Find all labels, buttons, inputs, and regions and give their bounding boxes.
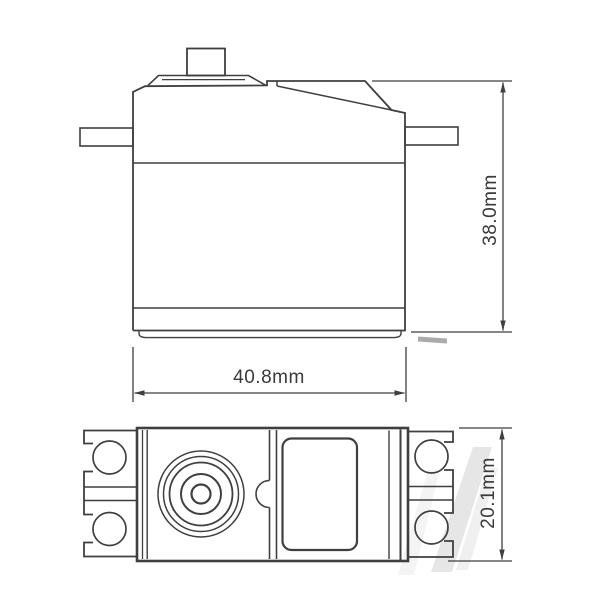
gear-circle-4 <box>181 474 221 514</box>
servo-bottom-view <box>84 428 453 561</box>
body-outline <box>133 81 405 331</box>
output-shaft-hole <box>192 485 211 504</box>
bottom-feet <box>139 331 401 338</box>
gear-circle-outer <box>158 451 244 537</box>
screw-hole-left-top <box>93 441 126 474</box>
arrowhead-up <box>499 429 504 440</box>
dimension-width: 40.8mm <box>133 347 406 402</box>
flange-left-rib <box>84 487 137 501</box>
screw-hole-right-top <box>415 440 448 473</box>
height-dimension-label: 38.0mm <box>480 174 501 246</box>
output-shaft <box>187 49 225 76</box>
servo-dimension-drawing: 38.0mm 40.8mm <box>0 0 600 600</box>
arrowhead-down <box>499 550 504 561</box>
flange-left-outline <box>84 431 137 557</box>
motor-compartment <box>283 439 358 551</box>
case-outline <box>137 428 408 561</box>
depth-dimension-label: 20.1mm <box>478 457 499 529</box>
gear-circle-3 <box>170 463 233 526</box>
dimension-height: 38.0mm <box>372 81 512 332</box>
gear-circle-2 <box>164 457 239 532</box>
top-boss <box>148 76 266 86</box>
technical-drawing-canvas: 38.0mm 40.8mm <box>0 0 600 600</box>
mounting-tab-left <box>80 128 133 146</box>
gear-train-circles <box>158 451 244 537</box>
rear-facet-line <box>277 81 392 110</box>
arrowhead-up <box>500 82 505 93</box>
servo-side-view <box>80 49 458 338</box>
arrowhead-left <box>134 390 145 395</box>
arrowhead-right <box>395 390 406 395</box>
watermark-dash <box>418 337 447 344</box>
screw-hole-left-bottom <box>93 513 126 546</box>
mounting-tab-right <box>405 127 458 145</box>
divider-notch-arc <box>256 481 270 508</box>
width-dimension-label: 40.8mm <box>233 367 305 388</box>
arrowhead-down <box>500 321 505 332</box>
mounting-flange-left <box>84 431 137 557</box>
